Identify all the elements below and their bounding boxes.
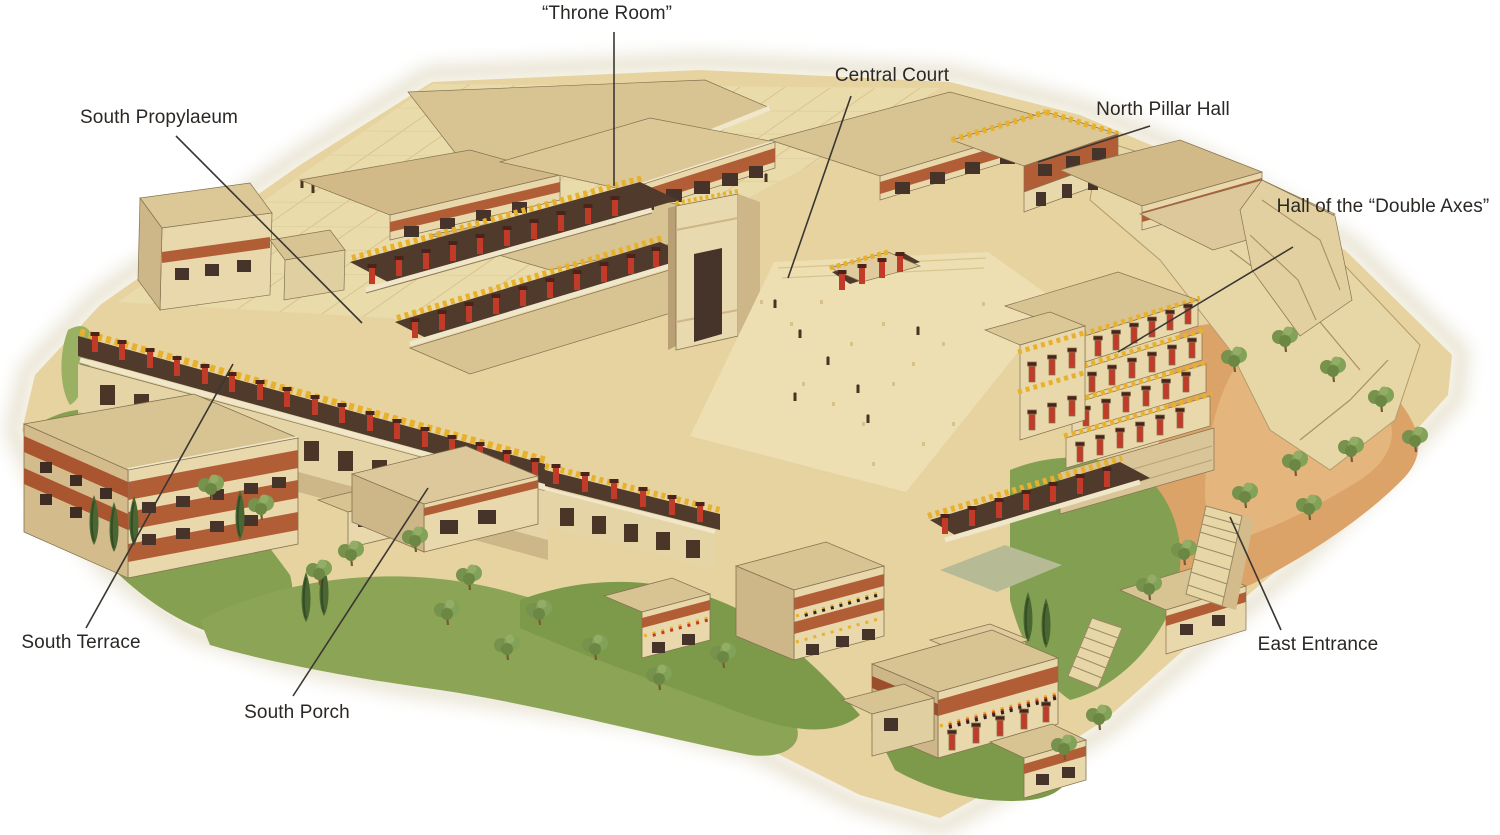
label-south-propylaeum: South Propylaeum [80,108,238,129]
label-hall-of-the-double-axes: Hall of the “Double Axes” [1277,197,1490,218]
knossos-palace-figure: “Throne Room” Central Court North Pillar… [0,0,1500,835]
label-throne-room: “Throne Room” [542,4,672,25]
southwest-house [24,394,298,578]
label-central-court: Central Court [835,66,949,87]
label-south-porch: South Porch [244,703,350,724]
label-north-pillar-hall: North Pillar Hall [1096,100,1230,121]
label-south-terrace: South Terrace [21,633,140,654]
label-east-entrance: East Entrance [1258,635,1379,656]
